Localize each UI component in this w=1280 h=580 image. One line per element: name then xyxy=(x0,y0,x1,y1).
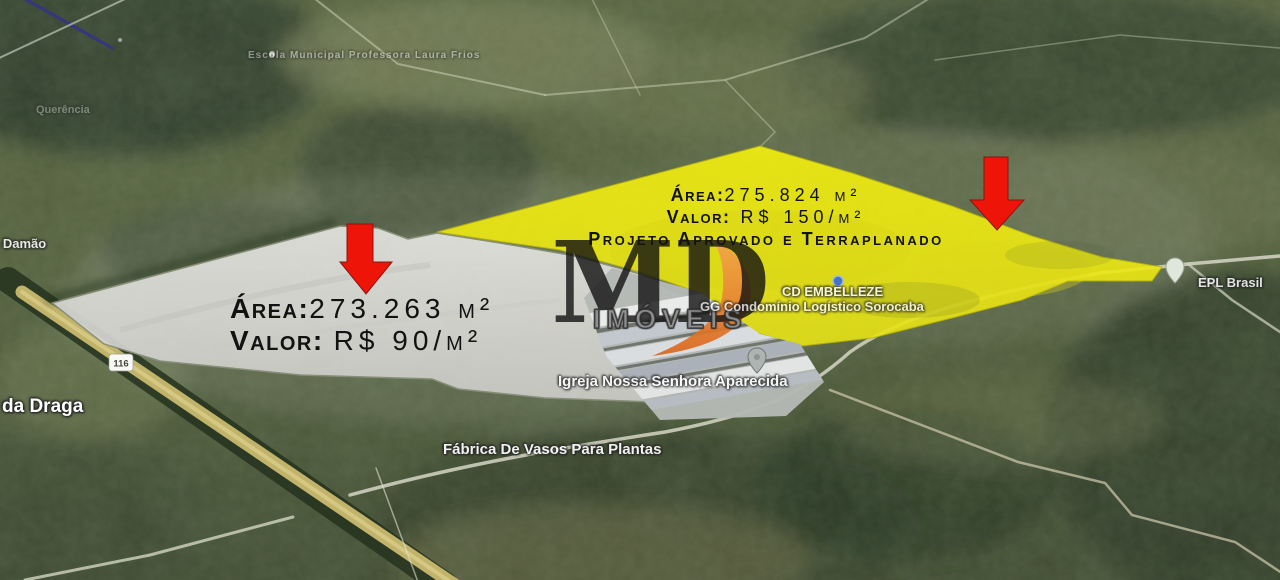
route-shield-number: 116 xyxy=(113,359,128,370)
gray-price-label: Valor: xyxy=(230,325,324,356)
gray-price-line: Valor:R$ 90/m² xyxy=(230,325,494,357)
yellow-price-label: Valor: xyxy=(667,207,731,227)
yellow-area-line: Área:275.824 m² xyxy=(538,184,994,206)
gray-price-value: R$ 90/m² xyxy=(334,325,482,356)
yellow-price-line: Valor:R$ 150/m² xyxy=(538,206,994,228)
route-shield-116: 116 xyxy=(109,354,133,371)
yellow-status-line: Projeto Aprovado e Terraplanado xyxy=(538,228,994,250)
brand-logo-tagline: IMÓVEIS xyxy=(593,304,748,335)
yellow-area-label: Área: xyxy=(671,185,725,205)
yellow-parcel-annotation: Área:275.824 m² Valor:R$ 150/m² Projeto … xyxy=(538,184,994,250)
gray-area-label: Área: xyxy=(230,293,309,324)
yellow-area-value: 275.824 m² xyxy=(725,185,862,205)
warehouse-dot-icon xyxy=(833,276,843,286)
yellow-price-value: R$ 150/m² xyxy=(740,207,865,227)
gray-area-line: Área:273.263 m² xyxy=(230,293,494,325)
gray-parcel-annotation: Área:273.263 m² Valor:R$ 90/m² xyxy=(230,293,494,357)
gray-area-value: 273.263 m² xyxy=(309,293,494,324)
poi-dot-icon xyxy=(269,51,275,57)
satellite-ad-image: 116 MD IMÓVEIS Escola Municipal Professo… xyxy=(0,0,1280,580)
